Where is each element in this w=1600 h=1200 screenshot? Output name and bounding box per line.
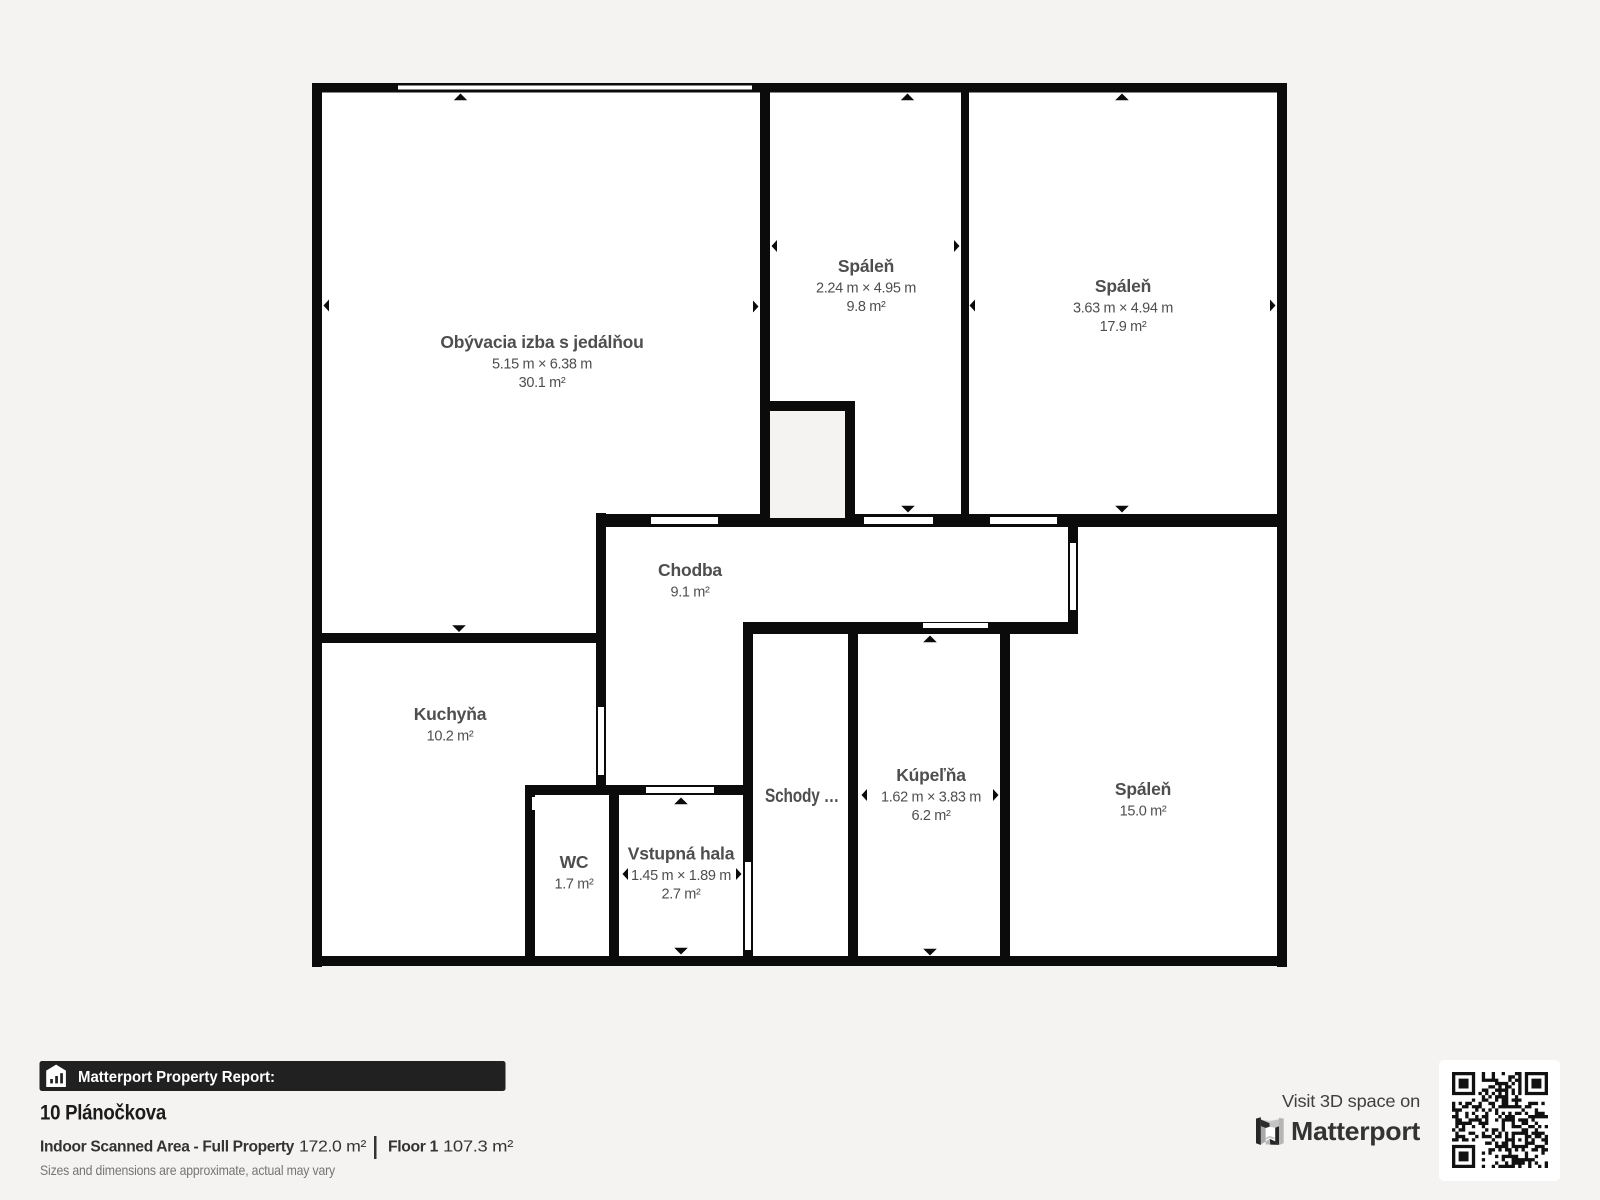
svg-text:Matterport Property Report:: Matterport Property Report: bbox=[78, 1069, 275, 1086]
svg-text:10.2 m²: 10.2 m² bbox=[427, 729, 474, 745]
svg-text:Indoor Scanned Area - Full Pro: Indoor Scanned Area - Full Property bbox=[40, 1139, 294, 1156]
svg-text:6.2 m²: 6.2 m² bbox=[912, 808, 952, 824]
svg-text:Visit 3D space on: Visit 3D space on bbox=[1282, 1091, 1420, 1111]
svg-text:Matterport: Matterport bbox=[1291, 1116, 1421, 1146]
svg-text:WC: WC bbox=[560, 852, 589, 872]
svg-text:9.8 m²: 9.8 m² bbox=[847, 299, 887, 315]
svg-text:Sizes and dimensions are appro: Sizes and dimensions are approximate, ac… bbox=[40, 1162, 335, 1178]
svg-text:17.9 m²: 17.9 m² bbox=[1100, 319, 1147, 335]
svg-text:1.62 m × 3.83 m: 1.62 m × 3.83 m bbox=[881, 790, 981, 806]
svg-text:Floor 1: Floor 1 bbox=[388, 1139, 438, 1156]
svg-text:Kúpeľňa: Kúpeľňa bbox=[896, 765, 966, 785]
svg-text:Kuchyňa: Kuchyňa bbox=[414, 704, 487, 724]
svg-text:2.7 m²: 2.7 m² bbox=[662, 887, 702, 903]
svg-text:Spáleň: Spáleň bbox=[1115, 779, 1171, 799]
svg-text:15.0 m²: 15.0 m² bbox=[1120, 804, 1167, 820]
svg-text:10 Plánočkova: 10 Plánočkova bbox=[40, 1102, 167, 1125]
svg-text:Schody …: Schody … bbox=[765, 786, 839, 807]
svg-text:Spáleň: Spáleň bbox=[838, 256, 894, 276]
svg-text:5.15 m × 6.38 m: 5.15 m × 6.38 m bbox=[492, 357, 592, 373]
svg-text:107.3 m²: 107.3 m² bbox=[443, 1139, 514, 1156]
svg-text:30.1 m²: 30.1 m² bbox=[519, 375, 566, 391]
svg-text:172.0 m²: 172.0 m² bbox=[299, 1139, 367, 1156]
svg-text:3.63 m × 4.94 m: 3.63 m × 4.94 m bbox=[1073, 301, 1173, 317]
svg-text:Spáleň: Spáleň bbox=[1095, 276, 1151, 296]
svg-text:1.7 m²: 1.7 m² bbox=[555, 877, 595, 893]
svg-text:2.24 m × 4.95 m: 2.24 m × 4.95 m bbox=[816, 281, 916, 297]
svg-text:Obývacia izba s jedálňou: Obývacia izba s jedálňou bbox=[440, 332, 643, 352]
svg-text:1.45 m × 1.89 m: 1.45 m × 1.89 m bbox=[631, 868, 731, 884]
svg-text:Vstupná hala: Vstupná hala bbox=[628, 844, 735, 864]
svg-text:Chodba: Chodba bbox=[658, 560, 722, 580]
svg-text:9.1 m²: 9.1 m² bbox=[671, 585, 711, 601]
